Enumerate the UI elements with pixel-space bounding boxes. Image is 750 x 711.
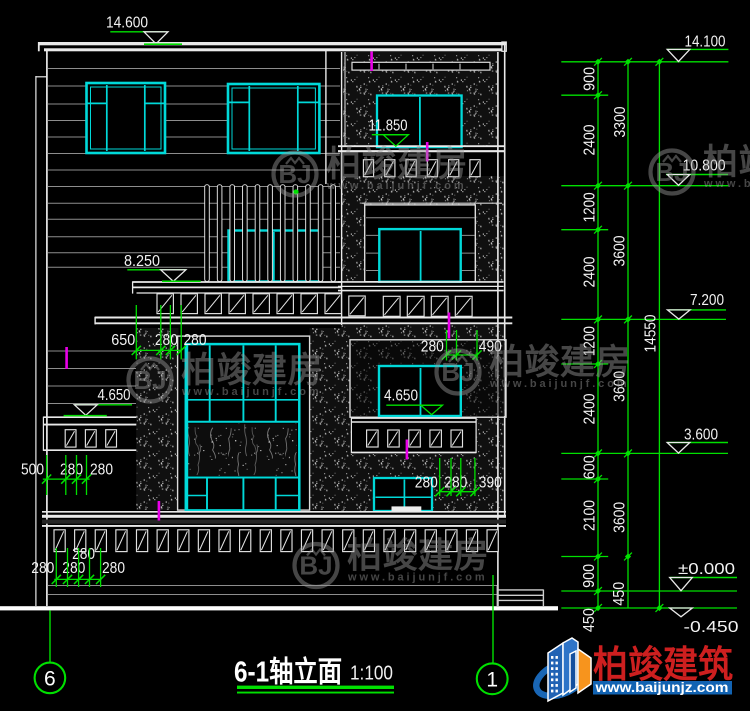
- svg-text:3300: 3300: [612, 106, 629, 137]
- svg-text:390: 390: [479, 475, 502, 492]
- svg-text:柏竣建房: 柏竣建房: [703, 142, 750, 182]
- svg-text:600: 600: [582, 455, 599, 479]
- svg-text:280: 280: [90, 462, 113, 479]
- svg-text:280: 280: [421, 339, 444, 356]
- svg-text:14550: 14550: [642, 314, 659, 352]
- svg-text:280: 280: [415, 475, 438, 492]
- svg-text:6-1轴立面: 6-1轴立面: [234, 655, 342, 689]
- svg-text:280: 280: [184, 332, 207, 349]
- svg-text:www.baijunjf.com: www.baijunjf.com: [181, 386, 322, 398]
- svg-text:6: 6: [44, 668, 56, 691]
- svg-text:8.250: 8.250: [124, 253, 160, 270]
- svg-text:柏竣建房: 柏竣建房: [489, 342, 631, 382]
- svg-text:280: 280: [102, 560, 125, 577]
- svg-text:450: 450: [611, 581, 628, 605]
- svg-text:650: 650: [111, 332, 135, 349]
- svg-text:3600: 3600: [612, 235, 629, 266]
- svg-text:±0.000: ±0.000: [678, 561, 735, 578]
- svg-text:2400: 2400: [582, 393, 599, 424]
- svg-text:柏竣建房: 柏竣建房: [181, 350, 323, 390]
- svg-text:-0.450: -0.450: [684, 619, 739, 636]
- svg-text:www.baijunjf.com: www.baijunjf.com: [703, 178, 750, 190]
- svg-text:www.baijunjf.com: www.baijunjf.com: [489, 378, 630, 390]
- svg-text:柏竣建筑: 柏竣建筑: [593, 643, 733, 685]
- svg-text:1:100: 1:100: [350, 663, 393, 685]
- svg-text:www.baijunjz.com: www.baijunjz.com: [594, 680, 728, 695]
- svg-text:11.850: 11.850: [369, 118, 408, 135]
- svg-text:900: 900: [581, 67, 598, 91]
- svg-text:14.600: 14.600: [106, 15, 148, 32]
- svg-text:2400: 2400: [581, 256, 598, 287]
- svg-text:2400: 2400: [581, 124, 598, 155]
- svg-text:900: 900: [581, 564, 598, 588]
- svg-text:柏竣建房: 柏竣建房: [326, 144, 468, 184]
- svg-text:1: 1: [486, 669, 498, 692]
- svg-text:1200: 1200: [581, 192, 598, 222]
- svg-text:3.600: 3.600: [684, 427, 718, 444]
- svg-text:2100: 2100: [582, 500, 599, 531]
- svg-text:280: 280: [62, 560, 85, 577]
- svg-text:450: 450: [581, 608, 598, 632]
- svg-text:500: 500: [21, 462, 44, 479]
- svg-text:www.baijunjf.com: www.baijunjf.com: [326, 180, 467, 192]
- svg-text:3600: 3600: [612, 502, 629, 533]
- svg-text:7.200: 7.200: [690, 292, 724, 309]
- svg-text:柏竣建房: 柏竣建房: [347, 536, 489, 576]
- svg-text:4.650: 4.650: [98, 387, 131, 404]
- svg-text:280: 280: [31, 560, 54, 577]
- svg-text:www.baijunjf.com: www.baijunjf.com: [347, 572, 488, 584]
- svg-text:14.100: 14.100: [685, 34, 726, 51]
- svg-text:4.650: 4.650: [384, 388, 418, 405]
